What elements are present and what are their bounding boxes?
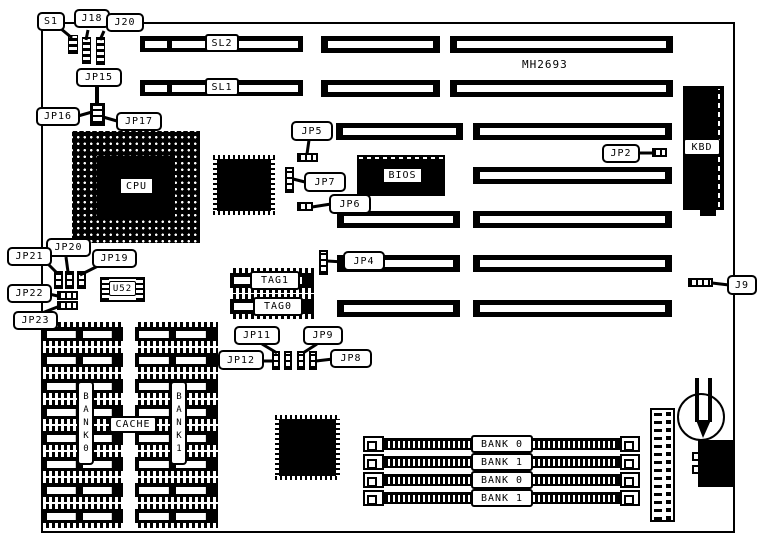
callout-jp6: JP6 xyxy=(329,194,371,214)
jumper-jp19-pin xyxy=(77,271,86,289)
kbd-connector: KBD xyxy=(683,86,724,210)
simm-bank-label-1: BANK 0 xyxy=(471,435,533,453)
qfp-chip-1 xyxy=(213,155,275,215)
cpu-socket: CPU xyxy=(72,131,200,243)
cache-chip xyxy=(135,478,218,502)
tag0-label: TAG0 xyxy=(253,297,303,316)
isa-slot xyxy=(337,300,460,317)
jumper-jp8-pin xyxy=(309,351,317,370)
simm-latch xyxy=(363,454,384,470)
isa-slot-sl2: SL2 xyxy=(140,36,303,52)
isa-slot xyxy=(321,80,440,97)
connector-j9 xyxy=(688,278,713,287)
callout-jp11: JP11 xyxy=(234,326,280,345)
isa-slot xyxy=(450,80,673,97)
din-connector xyxy=(698,440,734,487)
din-notch xyxy=(692,452,700,461)
callout-j18: J18 xyxy=(74,9,110,28)
isa-slot xyxy=(473,123,672,140)
cache-chip xyxy=(43,478,123,502)
callout-jp19: JP19 xyxy=(92,249,137,268)
cache-label: CACHE xyxy=(109,416,157,433)
simm-latch xyxy=(620,472,640,488)
cache-chip xyxy=(135,348,218,372)
jumper-jp11-pin xyxy=(284,351,292,370)
din-notch xyxy=(692,465,700,474)
connector-s1 xyxy=(68,35,78,54)
simm-bank-label-2: BANK 1 xyxy=(471,453,533,471)
cache-bank1-label: BANK1 xyxy=(170,381,187,465)
cpu-label: CPU xyxy=(119,177,154,195)
simm-latch xyxy=(363,472,384,488)
slot-label-sl2: SL2 xyxy=(205,34,239,52)
callout-jp9: JP9 xyxy=(303,326,343,345)
slot-label-sl1: SL1 xyxy=(205,78,239,96)
bios-label: BIOS xyxy=(382,167,423,184)
isa-slot xyxy=(450,36,673,53)
jumper-jp22 xyxy=(57,291,78,300)
jumper-jp4 xyxy=(319,250,328,275)
isa-slot xyxy=(473,167,672,184)
slot-segment xyxy=(145,85,167,92)
simm-bank-label-3: BANK 0 xyxy=(471,471,533,489)
jumper-jp6 xyxy=(297,202,313,211)
cache-chip xyxy=(43,504,123,528)
simm-latch xyxy=(620,436,640,452)
callout-jp23: JP23 xyxy=(13,311,58,330)
u52-chip: U52 xyxy=(100,277,145,302)
jumper-jp15 xyxy=(90,103,105,126)
simm-latch xyxy=(363,490,384,506)
battery xyxy=(677,393,725,441)
jumper-jp20-pin xyxy=(65,271,74,289)
connector-j18 xyxy=(82,37,91,64)
tag0-chip: TAG0 xyxy=(230,294,314,319)
jumper-jp7 xyxy=(285,167,294,193)
tag1-chip: TAG1 xyxy=(230,268,314,293)
bios-chip: BIOS xyxy=(357,155,445,196)
callout-jp17: JP17 xyxy=(116,112,162,131)
callout-j20: J20 xyxy=(106,13,144,32)
jumper-jp21-pin xyxy=(54,271,63,289)
callout-jp22: JP22 xyxy=(7,284,52,303)
isa-slot xyxy=(473,300,672,317)
callout-jp8: JP8 xyxy=(330,349,372,368)
simm-latch xyxy=(620,454,640,470)
callout-jp2: JP2 xyxy=(602,144,640,163)
bios-socket-edge xyxy=(359,157,443,159)
isa-slot-sl1: SL1 xyxy=(140,80,303,96)
callout-j9: J9 xyxy=(727,275,757,295)
power-connector xyxy=(650,408,675,522)
callout-jp7: JP7 xyxy=(304,172,346,192)
motherboard-diagram: MH2693 SL2 SL1 CPU BIOS KBD xyxy=(0,0,758,540)
connector-j20 xyxy=(96,37,105,65)
cache-bank0-label: BANK0 xyxy=(77,381,94,465)
simm-latch xyxy=(363,436,384,452)
callout-jp16: JP16 xyxy=(36,107,80,126)
jumper-jp23 xyxy=(57,301,78,310)
simm-latch xyxy=(620,490,640,506)
kbd-label: KBD xyxy=(684,139,720,155)
qfp-chip-2 xyxy=(275,415,340,480)
jumper-jp2 xyxy=(652,148,667,157)
callout-jp4: JP4 xyxy=(343,251,385,271)
jumper-jp9-pin xyxy=(297,351,305,370)
u52-label: U52 xyxy=(109,281,136,296)
isa-slot xyxy=(336,123,463,140)
callout-jp5: JP5 xyxy=(291,121,333,141)
cache-chip xyxy=(135,504,218,528)
isa-slot xyxy=(473,255,672,272)
callout-jp12: JP12 xyxy=(218,350,264,370)
jumper-jp12-pin xyxy=(272,351,280,370)
callout-jp21: JP21 xyxy=(7,247,52,266)
slot-segment xyxy=(145,41,167,48)
kbd-tab xyxy=(700,210,716,216)
jumper-jp5 xyxy=(297,153,318,162)
isa-slot xyxy=(473,211,672,228)
callout-jp15: JP15 xyxy=(76,68,122,87)
callout-s1: S1 xyxy=(37,12,65,31)
cache-chip xyxy=(135,322,218,346)
tag1-label: TAG1 xyxy=(250,271,300,290)
cache-chip xyxy=(43,348,123,372)
callout-jp20: JP20 xyxy=(46,238,91,257)
model-text: MH2693 xyxy=(522,58,568,71)
simm-bank-label-4: BANK 1 xyxy=(471,489,533,507)
isa-slot xyxy=(321,36,440,53)
